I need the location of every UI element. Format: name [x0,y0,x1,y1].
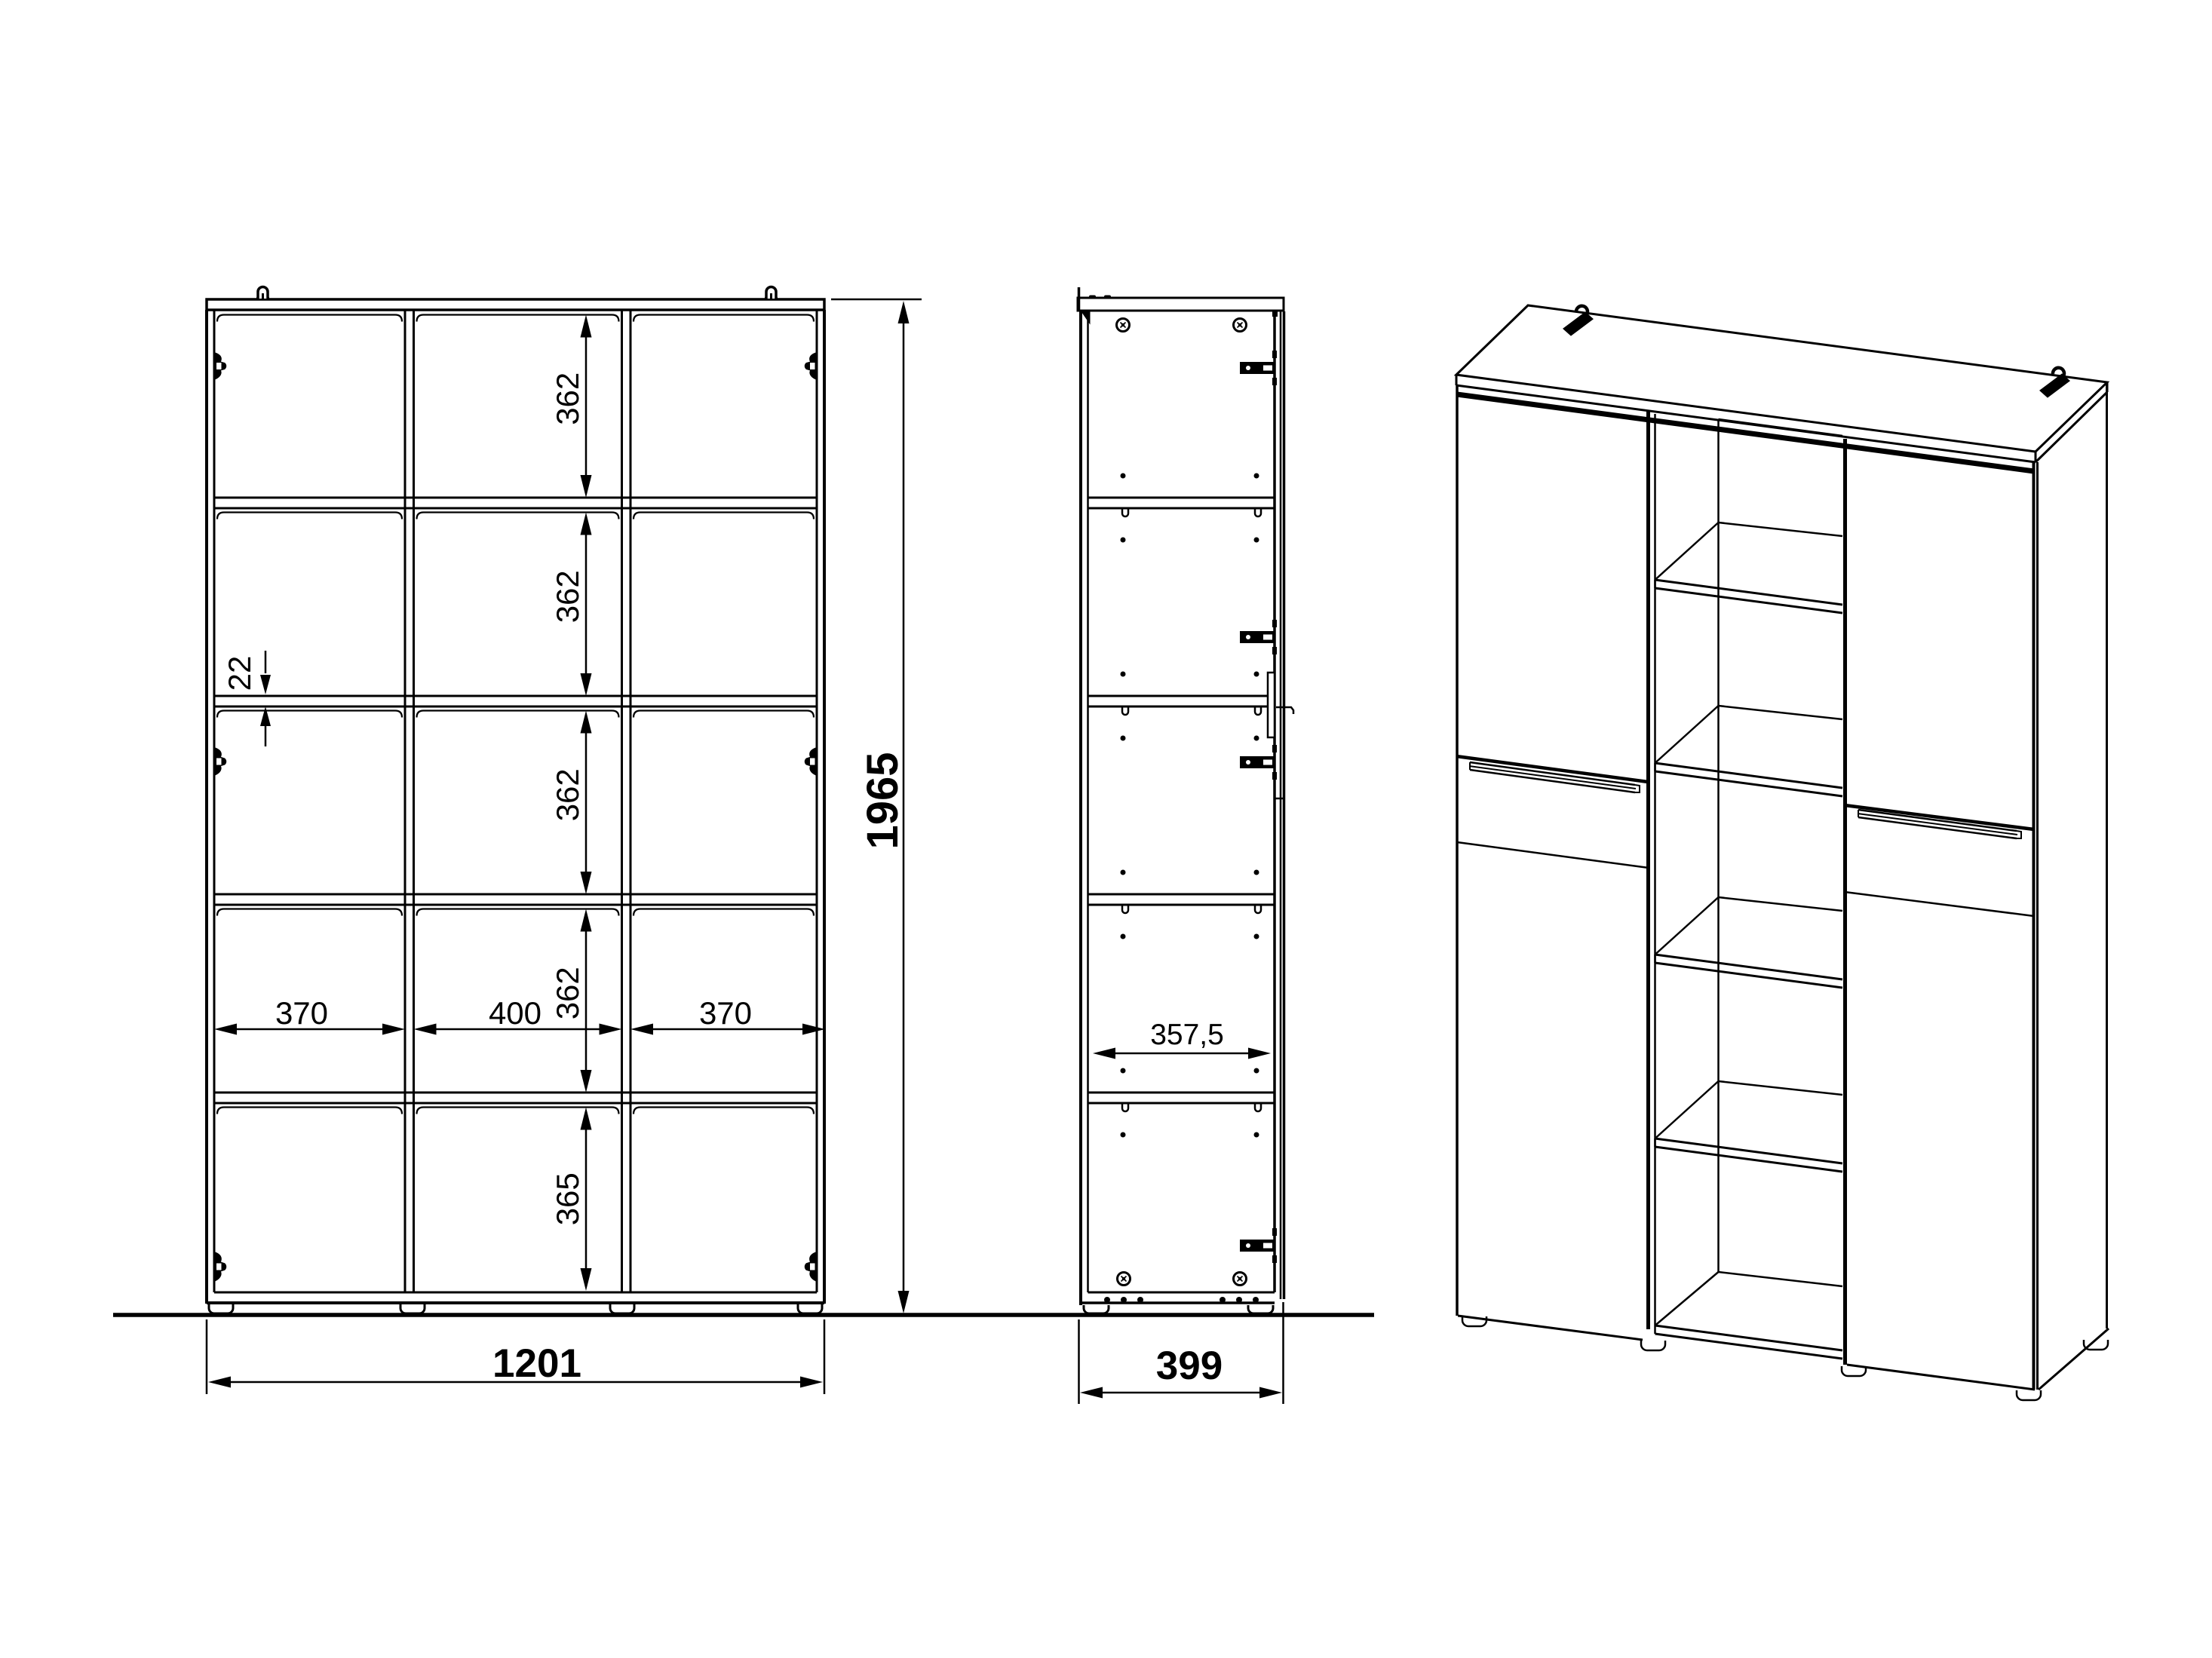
svg-text:365: 365 [550,1172,585,1225]
svg-text:362: 362 [550,372,585,425]
svg-text:362: 362 [550,768,585,821]
svg-text:399: 399 [1156,1344,1223,1388]
svg-text:370: 370 [275,995,328,1031]
svg-text:400: 400 [489,995,541,1031]
svg-text:362: 362 [550,570,585,623]
svg-text:362: 362 [550,967,585,1019]
svg-text:22: 22 [222,656,257,691]
svg-text:1201: 1201 [492,1341,581,1386]
svg-text:370: 370 [699,995,752,1031]
svg-text:357,5: 357,5 [1150,1019,1224,1051]
svg-text:1965: 1965 [858,752,907,849]
